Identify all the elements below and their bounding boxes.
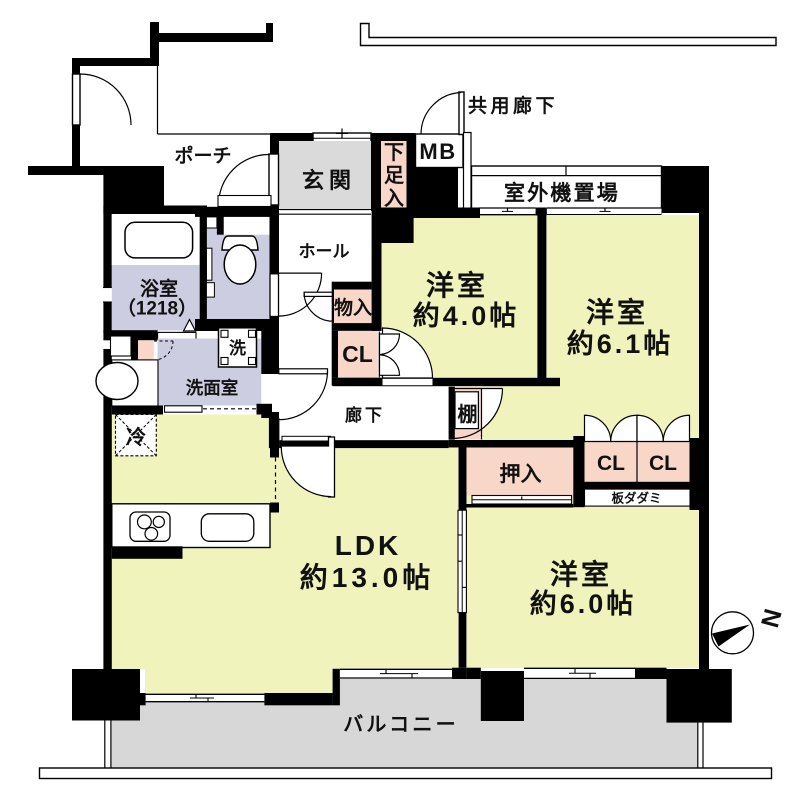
svg-text:共用廊下: 共用廊下 [468,94,558,117]
svg-text:廊下: 廊下 [345,405,385,425]
svg-text:浴室: 浴室 [140,277,178,300]
svg-text:下: 下 [384,142,404,164]
svg-text:物入: 物入 [334,296,372,319]
svg-text:室外機置場: 室外機置場 [504,181,620,205]
svg-text:足: 足 [384,165,405,187]
svg-text:洋室: 洋室 [586,296,648,328]
svg-text:CL: CL [342,341,373,367]
svg-text:洗面室: 洗面室 [186,378,239,398]
svg-text:洋室: 洋室 [550,558,612,590]
svg-text:冷: 冷 [126,425,146,449]
svg-text:ホール: ホール [299,242,350,261]
svg-text:約6.0帖: 約6.0帖 [530,588,637,619]
svg-text:バルコニー: バルコニー [343,713,459,736]
svg-text:板ダダミ: 板ダダミ [611,491,661,506]
svg-text:約4.0帖: 約4.0帖 [413,300,520,331]
svg-text:約6.1帖: 約6.1帖 [567,328,674,359]
svg-text:CL: CL [597,452,625,475]
svg-text:CL: CL [649,452,677,475]
svg-text:MB: MB [419,139,456,164]
svg-text:約13.0帖: 約13.0帖 [300,561,435,593]
svg-text:（1218）: （1218） [117,297,197,320]
svg-text:押入: 押入 [500,462,542,486]
svg-text:棚: 棚 [458,402,478,426]
svg-text:洗: 洗 [229,338,246,358]
svg-text:洋室: 洋室 [426,269,488,301]
svg-text:ポーチ: ポーチ [174,144,231,167]
svg-text:入: 入 [384,187,404,210]
svg-text:LDK: LDK [335,530,402,561]
svg-text:玄関: 玄関 [302,168,356,193]
